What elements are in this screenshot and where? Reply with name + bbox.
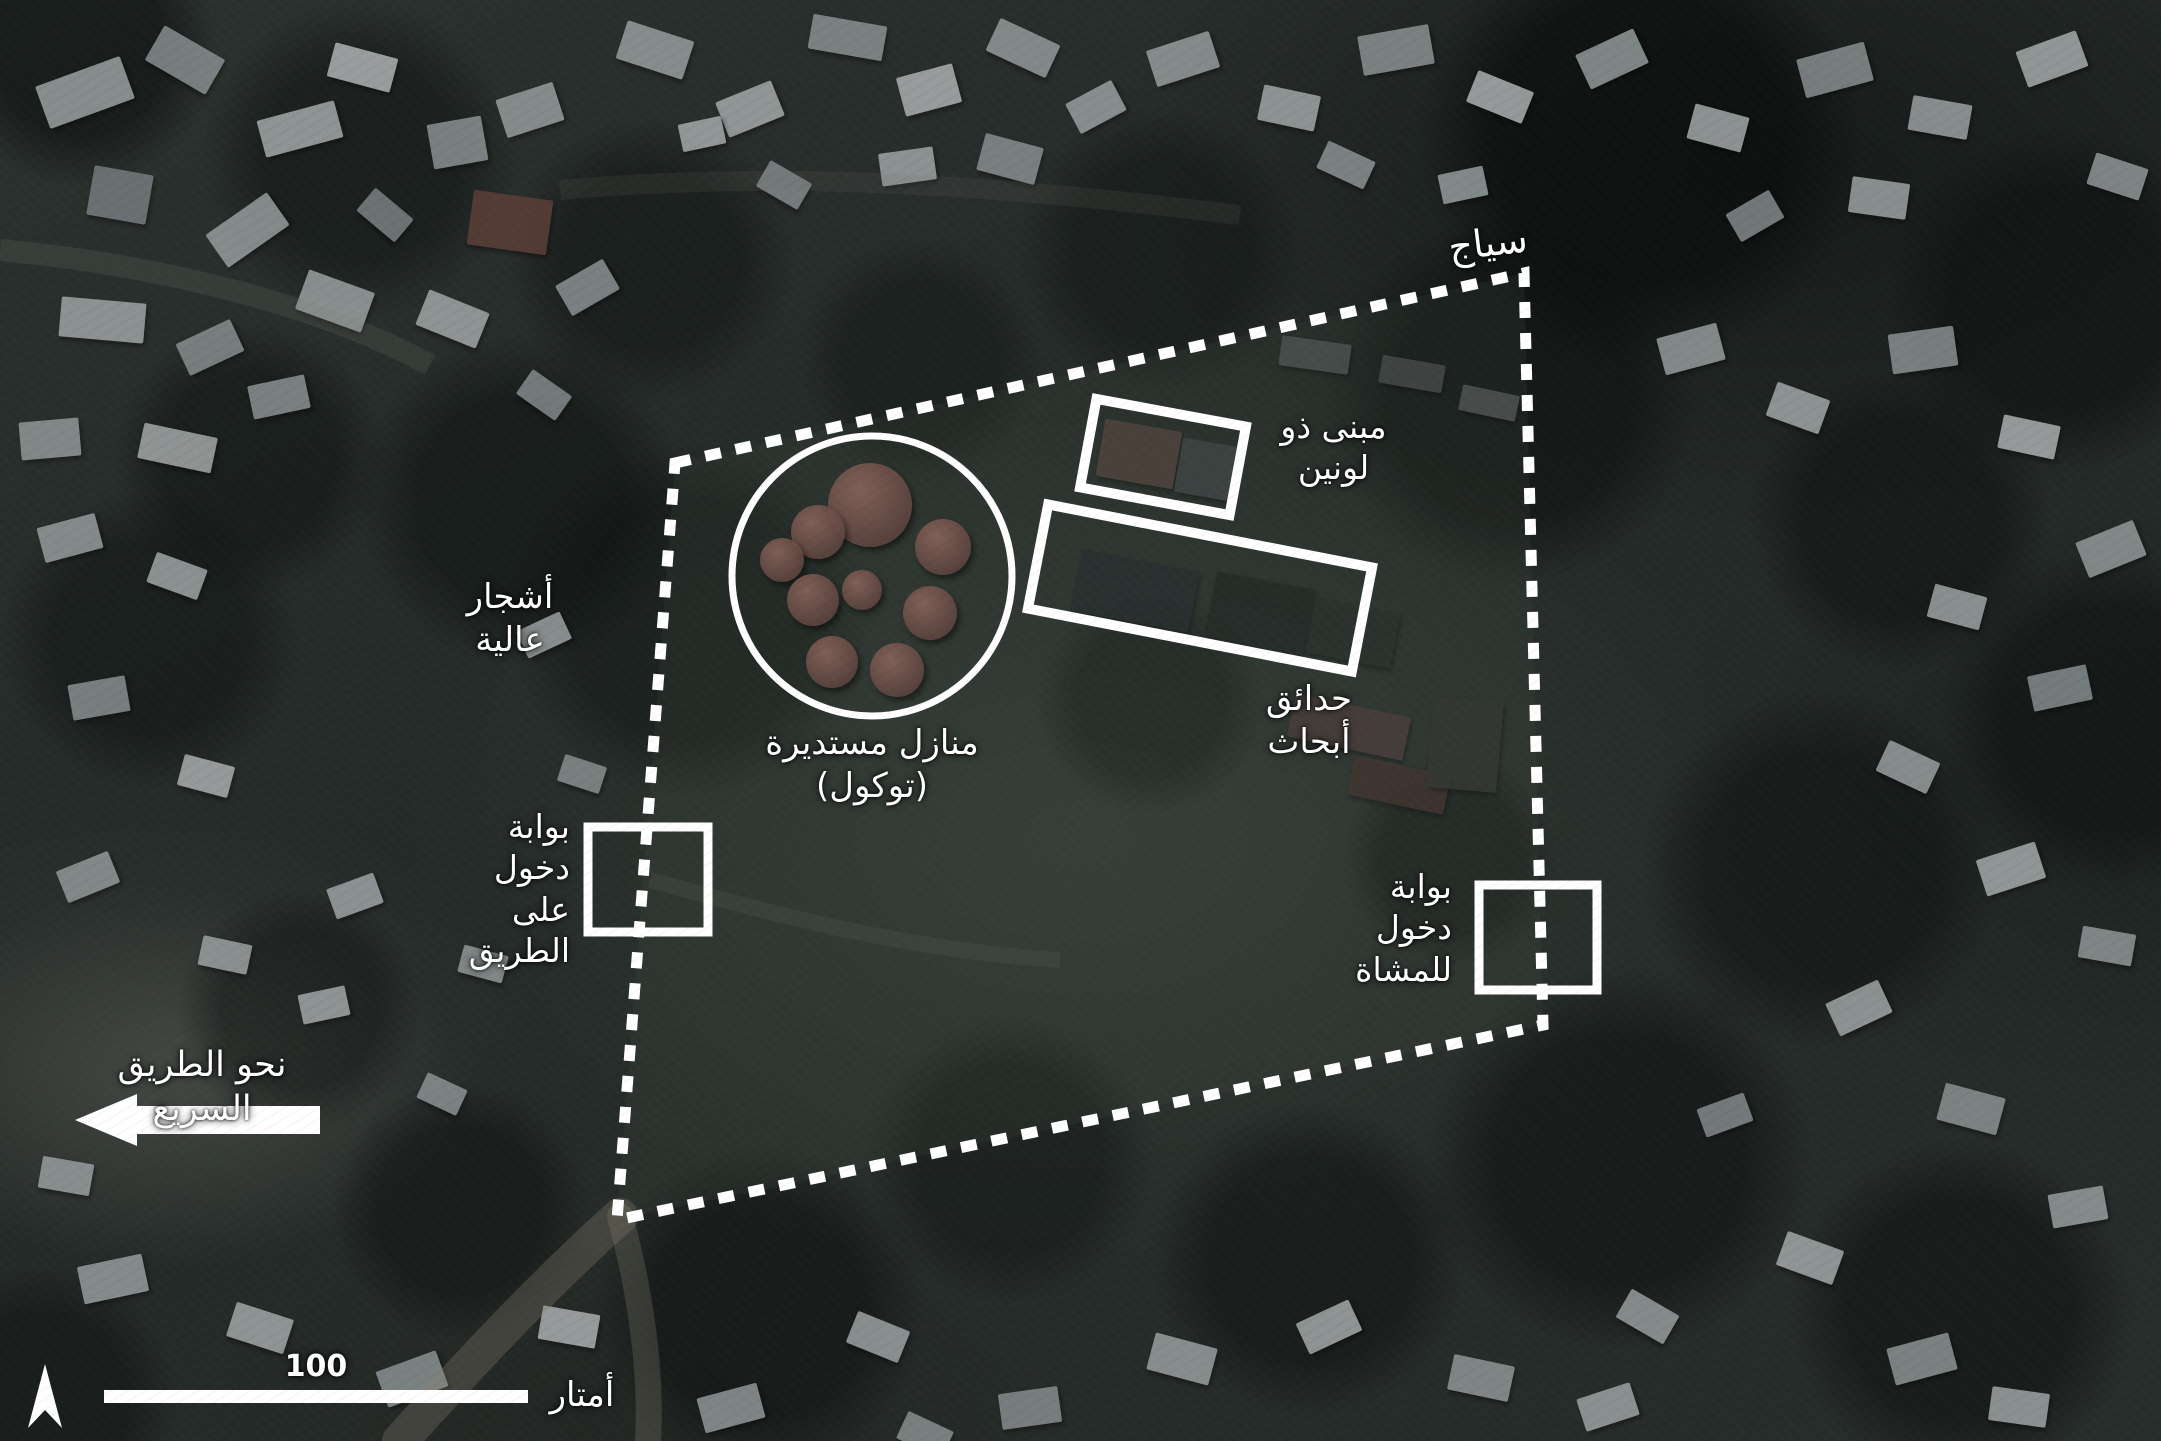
image-grain — [0, 0, 2161, 1441]
annotated-satellite-map: سياج مبنى ذو لونين أشجار عالية منازل مست… — [0, 0, 2161, 1441]
